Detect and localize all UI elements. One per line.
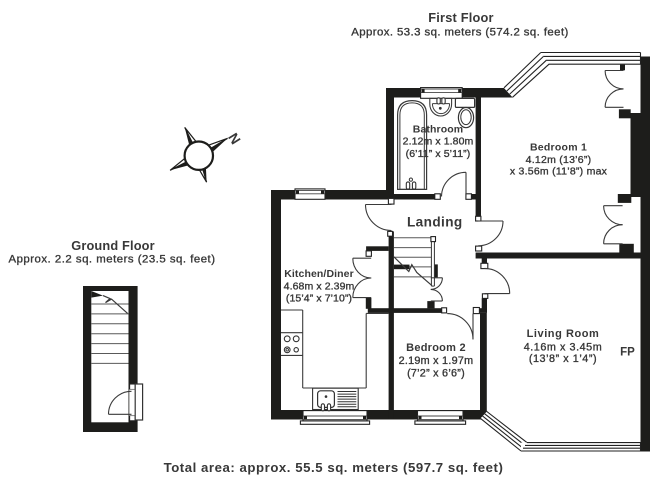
svg-text:x 3.56m (11’8”) max: x 3.56m (11’8”) max [510, 166, 608, 178]
svg-text:Approx. 2.2 sq. meters (23.5 s: Approx. 2.2 sq. meters (23.5 sq. feet) [8, 254, 215, 266]
svg-text:Approx. 53.3 sq. meters (574.2: Approx. 53.3 sq. meters (574.2 sq. feet) [351, 27, 569, 39]
svg-text:First Floor: First Floor [428, 10, 493, 25]
svg-text:Ground Floor: Ground Floor [71, 238, 155, 253]
svg-text:(7’2” x 6’6”): (7’2” x 6’6”) [407, 368, 465, 380]
svg-text:2.19m x 1.97m: 2.19m x 1.97m [399, 355, 474, 367]
svg-text:Bedroom 2: Bedroom 2 [406, 342, 466, 354]
svg-text:Bedroom 1: Bedroom 1 [530, 142, 587, 154]
svg-text:4.68m x 2.39m: 4.68m x 2.39m [284, 280, 355, 292]
svg-text:(13’8” x 1’4”): (13’8” x 1’4”) [529, 353, 597, 365]
svg-text:4.12m (13’6”): 4.12m (13’6”) [526, 154, 592, 166]
svg-text:(6’11” x 5’11”): (6’11” x 5’11”) [406, 148, 471, 160]
svg-text:Bathroom: Bathroom [413, 124, 463, 136]
svg-text:Total area: approx. 55.5 sq. m: Total area: approx. 55.5 sq. meters (597… [164, 460, 504, 475]
svg-text:(15’4” x 7’10”): (15’4” x 7’10”) [286, 292, 352, 304]
svg-text:4.16m x 3.45m: 4.16m x 3.45m [524, 341, 603, 353]
svg-text:Kitchen/Diner: Kitchen/Diner [284, 268, 354, 280]
svg-text:Landing: Landing [407, 215, 463, 230]
svg-text:Living Room: Living Room [527, 328, 600, 340]
svg-text:2.12m x 1.80m: 2.12m x 1.80m [403, 136, 474, 148]
svg-text:FP: FP [620, 347, 635, 359]
